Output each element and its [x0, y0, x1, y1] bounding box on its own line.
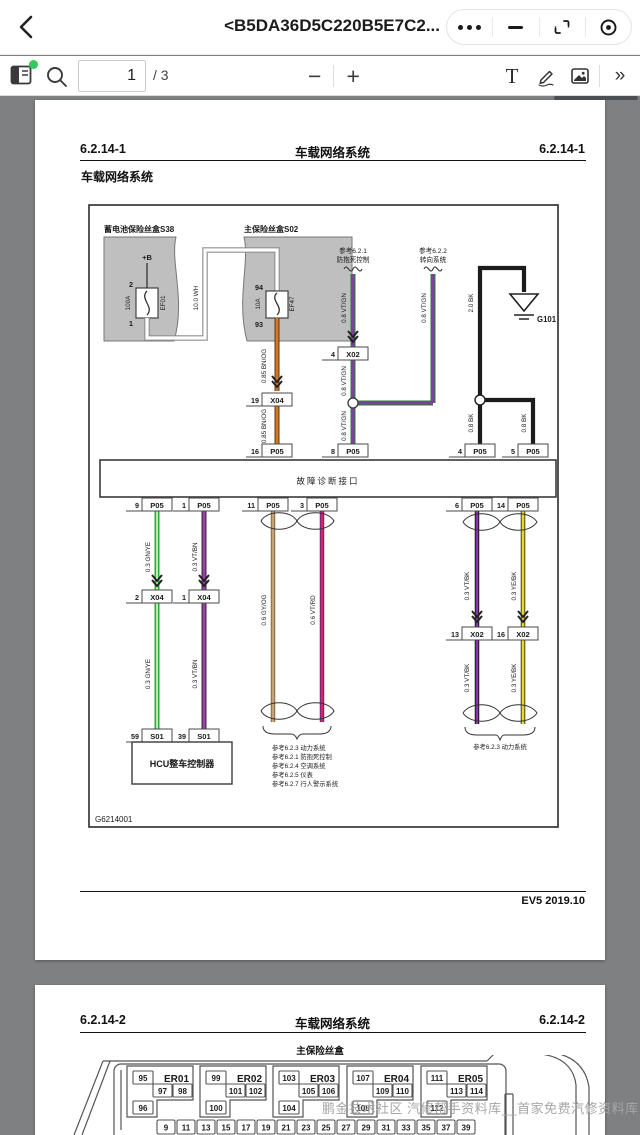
svg-text:X02: X02 [470, 630, 484, 639]
pin-93: 93 [255, 320, 263, 329]
image-icon [570, 66, 590, 86]
connector-5-p05: 5P05 [502, 444, 548, 457]
svg-text:31: 31 [382, 1124, 391, 1133]
ref-note: 参考6.2.4 空调系统 [272, 761, 326, 770]
svg-text:106: 106 [322, 1087, 336, 1096]
page-number-input[interactable]: 1 [78, 60, 146, 92]
section-code-right: 6.2.14-1 [539, 142, 585, 161]
ground-g101-label: G101 [537, 315, 557, 324]
page-title: 车载网络系统 [295, 142, 370, 161]
svg-text:16: 16 [497, 630, 505, 639]
svg-text:14: 14 [497, 501, 505, 510]
svg-text:9: 9 [164, 1124, 169, 1133]
text-tool-button[interactable]: T [497, 61, 527, 91]
section-code-right: 6.2.14-2 [539, 1013, 585, 1032]
svg-text:P05: P05 [150, 501, 164, 510]
page-total-label: / 3 [153, 67, 169, 83]
ref-note: 参考6.2.3 动力系统 [272, 743, 326, 752]
wire-gyog-label: 0.6 GY/OG [261, 594, 268, 625]
svg-text:P05: P05 [346, 447, 360, 456]
figure-code: G6214001 [95, 815, 133, 824]
float-window-icon[interactable] [540, 16, 585, 38]
wire-bnog-label: 0.85 BN/OG [261, 409, 268, 443]
brace [465, 727, 535, 740]
wire-bk08-label: 0.8 BK [521, 413, 528, 433]
svg-text:109: 109 [376, 1087, 390, 1096]
svg-text:X04: X04 [270, 396, 284, 405]
ref-note: 参考6.2.5 仪表 [272, 770, 314, 779]
svg-text:ER04: ER04 [384, 1074, 409, 1085]
svg-text:23: 23 [302, 1124, 311, 1133]
wire-vtgn-label: 0.8 VT/GN [341, 366, 348, 396]
wiring-diagram: 蓄电池保险丝盒S38 主保险丝盒S02 +B 2 1 100A EF01 10.… [88, 203, 562, 830]
svg-text:95: 95 [139, 1074, 148, 1083]
fusebox-diagram: 95 ER01 97 98 96 99 ER02 101 102 100 [60, 1055, 605, 1135]
wire-bnog-label: 0.85 BN/OG [261, 349, 268, 383]
svg-text:11: 11 [247, 501, 255, 510]
page1-running-header: 6.2.14-1 车载网络系统 6.2.14-1 [80, 142, 585, 161]
svg-text:33: 33 [402, 1124, 411, 1133]
connector-3-p05: 3P05 [291, 498, 337, 511]
search-icon[interactable] [45, 65, 68, 88]
svg-text:P05: P05 [470, 501, 484, 510]
connector-59-s01: 59S01 [126, 729, 172, 742]
svg-text:16: 16 [251, 447, 259, 456]
ef47-name: EF47 [289, 296, 296, 312]
browser-capsule [446, 9, 632, 45]
thumbnails-icon[interactable] [9, 63, 37, 89]
continuation-squiggle [424, 267, 442, 271]
footer-version: EV5 2019.10 [521, 895, 585, 907]
svg-text:P05: P05 [270, 447, 284, 456]
svg-text:ER05: ER05 [458, 1074, 483, 1085]
svg-text:101: 101 [229, 1087, 243, 1096]
svg-text:39: 39 [462, 1124, 471, 1133]
connector-4-p05: 4P05 [449, 444, 495, 457]
header-rule [80, 160, 586, 161]
footer-rule [80, 891, 586, 892]
pin-94: 94 [255, 283, 263, 292]
connector-8-p05: 8P05 [322, 444, 368, 457]
ef01-name: EF01 [160, 295, 167, 311]
wire-vtgn-label: 0.8 VT/GN [341, 411, 348, 441]
ref-note: 参考6.2.7 行人警示系统 [272, 779, 339, 788]
connector-9-p05: 9P05 [126, 498, 172, 511]
svg-text:39: 39 [178, 732, 186, 741]
connector-19-x04: 19X04 [246, 393, 292, 406]
ground-symbol [510, 294, 538, 311]
ref-note: 参考6.2.1 防抱死控制 [272, 752, 332, 761]
wire-wh-label: 10.0 WH [193, 285, 200, 310]
svg-text:29: 29 [362, 1124, 371, 1133]
wire-bk08-label: 0.8 BK [468, 413, 475, 433]
svg-text:37: 37 [442, 1124, 451, 1133]
junction [348, 398, 358, 408]
svg-text:104: 104 [282, 1104, 296, 1113]
minimize-icon[interactable] [493, 16, 538, 38]
connector-2-x04: 2X04 [126, 590, 172, 603]
connector-14-p05: 14P05 [492, 498, 538, 511]
svg-text:6: 6 [455, 501, 459, 510]
svg-text:8: 8 [331, 447, 335, 456]
wire-vtgn-label: 0.8 VT/GN [421, 293, 428, 323]
header-rule [80, 1032, 586, 1033]
svg-text:100: 100 [209, 1104, 223, 1113]
svg-text:3: 3 [300, 501, 304, 510]
pen-icon [536, 66, 557, 87]
svg-text:P05: P05 [473, 447, 487, 456]
svg-text:S01: S01 [150, 732, 164, 741]
svg-text:103: 103 [282, 1074, 296, 1083]
wire-bk2-label: 2.0 BK [468, 293, 475, 313]
section-code-left: 6.2.14-2 [80, 1013, 126, 1032]
section-code-left: 6.2.14-1 [80, 142, 126, 161]
zoom-in-button[interactable]: + [334, 57, 371, 95]
svg-text:99: 99 [212, 1074, 221, 1083]
svg-text:X02: X02 [346, 350, 360, 359]
pdf-toolbar: 1 / 3 − + T » [0, 56, 640, 96]
svg-text:21: 21 [282, 1124, 291, 1133]
svg-text:X04: X04 [197, 593, 211, 602]
connector-11-p05: 11P05 [242, 498, 288, 511]
relay-group-er02: 99 ER02 101 102 100 [200, 1066, 266, 1117]
relay-group-er01: 95 ER01 97 98 96 [127, 1066, 193, 1117]
svg-text:X02: X02 [516, 630, 530, 639]
ef47-rating: 10A [255, 298, 262, 310]
svg-text:27: 27 [342, 1124, 351, 1133]
svg-text:107: 107 [356, 1074, 370, 1083]
wire-yebk-label: 0.3 YE/BK [511, 571, 518, 601]
svg-text:P05: P05 [526, 447, 540, 456]
document-title: <B5DA36D5C220B5E7C2... [224, 16, 440, 36]
svg-text:59: 59 [131, 732, 139, 741]
svg-text:98: 98 [178, 1087, 187, 1096]
svg-text:110: 110 [396, 1087, 409, 1096]
hcu-label: HCU整车控制器 [150, 758, 215, 769]
svg-text:35: 35 [422, 1124, 431, 1133]
svg-text:111: 111 [431, 1074, 444, 1083]
wire-gnye-label: 0.3 GN/YE [145, 659, 152, 689]
ref-622: 参考6.2.2 [419, 246, 447, 255]
svg-text:96: 96 [139, 1104, 148, 1113]
connector-13-x02: 13X02 [446, 627, 492, 640]
main-fusebox-label: 主保险丝盒S02 [244, 224, 299, 234]
pen-tool-button[interactable] [531, 61, 561, 91]
screen: <B5DA36D5C220B5E7C2... [0, 0, 640, 1135]
svg-text:9: 9 [135, 501, 139, 510]
svg-text:ER01: ER01 [164, 1074, 189, 1085]
svg-text:113: 113 [450, 1087, 463, 1096]
target-icon[interactable] [586, 16, 631, 38]
annotation-tools: T » [497, 56, 634, 96]
svg-text:13: 13 [202, 1124, 211, 1133]
connector-1-p05: 1P05 [173, 498, 219, 511]
wire-vtbk-label: 0.3 VT/BK [464, 663, 471, 692]
pdf-page-1: 6.2.14-1 车载网络系统 6.2.14-1 车载网络系统 蓄电池保险丝盒S… [35, 100, 605, 960]
svg-text:ER02: ER02 [237, 1074, 262, 1085]
connector-16-x02: 16X02 [492, 627, 538, 640]
scrollbar-thumb[interactable] [554, 96, 638, 100]
svg-text:S01: S01 [197, 732, 211, 741]
wire-vtrd-label: 0.6 VT/RD [310, 595, 317, 625]
svg-text:X04: X04 [150, 593, 164, 602]
connector-16-p05: 16P05 [246, 444, 292, 457]
ref-621: 参考6.2.1 [339, 246, 367, 255]
image-tool-button[interactable] [565, 61, 595, 91]
svg-text:5: 5 [511, 447, 515, 456]
svg-text:ER03: ER03 [310, 1074, 335, 1085]
svg-text:15: 15 [222, 1124, 231, 1133]
svg-text:114: 114 [470, 1087, 483, 1096]
connector-4-x02: 4X02 [322, 347, 368, 360]
junction [475, 395, 485, 405]
battery-fusebox-label: 蓄电池保险丝盒S38 [104, 224, 175, 234]
svg-text:P05: P05 [516, 501, 530, 510]
wire-gnye-label: 0.3 GN/YE [145, 542, 152, 572]
svg-text:11: 11 [182, 1124, 191, 1133]
ref-note-right: 参考6.2.3 动力系统 [473, 742, 527, 751]
twisted-pair-symbol [463, 705, 537, 722]
connector-39-s01: 39S01 [173, 729, 219, 742]
watermark: 鹏金技术社区 汽修帮手资料库__首家免费汽修资料库 [322, 1098, 639, 1117]
pin-2: 2 [129, 280, 133, 289]
zoom-controls: − + [296, 56, 372, 96]
svg-text:97: 97 [158, 1087, 167, 1096]
plus-b-label: +B [142, 253, 152, 262]
wire-vtbn-label: 0.3 VT/BN [192, 542, 199, 571]
ef01-rating: 100A [125, 295, 132, 311]
menu-dots-icon[interactable] [447, 16, 492, 38]
wire-vtgn-label: 0.8 VT/GN [341, 293, 348, 323]
svg-text:102: 102 [249, 1087, 263, 1096]
ref-621b: 防抱死控制 [337, 255, 370, 264]
update-badge [29, 60, 38, 69]
svg-text:25: 25 [322, 1124, 331, 1133]
pdf-content-area[interactable]: 6.2.14-1 车载网络系统 6.2.14-1 车载网络系统 蓄电池保险丝盒S… [0, 96, 640, 1135]
more-tools-button[interactable]: » [604, 61, 634, 91]
svg-text:13: 13 [451, 630, 459, 639]
svg-text:17: 17 [242, 1124, 251, 1133]
page2-running-header: 6.2.14-2 车载网络系统 6.2.14-2 [80, 1013, 585, 1032]
back-icon[interactable] [14, 14, 40, 40]
wire-vtbk-label: 0.3 VT/BK [464, 571, 471, 600]
svg-text:P05: P05 [266, 501, 280, 510]
svg-text:4: 4 [331, 350, 335, 359]
ref-622b: 转向系统 [420, 255, 447, 264]
diagnostic-connector-label: 故障诊断接口 [296, 476, 359, 486]
svg-text:1: 1 [182, 501, 186, 510]
connector-1-x04: 1X04 [173, 590, 219, 603]
svg-text:19: 19 [251, 396, 259, 405]
fuse-row: 9 11 13 15 17 19 21 23 25 27 29 31 33 35… [157, 1120, 475, 1134]
svg-text:P05: P05 [197, 501, 211, 510]
page-title: 车载网络系统 [295, 1013, 370, 1032]
svg-text:2: 2 [135, 593, 139, 602]
svg-text:105: 105 [302, 1087, 316, 1096]
svg-text:P05: P05 [315, 501, 329, 510]
zoom-out-button[interactable]: − [296, 57, 333, 95]
app-bar: <B5DA36D5C220B5E7C2... [0, 0, 640, 55]
wire-yebk-label: 0.3 YE/BK [511, 663, 518, 693]
svg-text:4: 4 [458, 447, 462, 456]
svg-text:1: 1 [182, 593, 186, 602]
brace [263, 726, 331, 739]
svg-text:19: 19 [262, 1124, 271, 1133]
twisted-pair-symbol [463, 514, 537, 531]
divider [599, 65, 600, 87]
connector-6-p05: 6P05 [446, 498, 492, 511]
pin-1: 1 [129, 319, 133, 328]
wire-vtbn-label: 0.3 VT/BN [192, 659, 199, 688]
diagram-subtitle: 车载网络系统 [81, 168, 153, 185]
